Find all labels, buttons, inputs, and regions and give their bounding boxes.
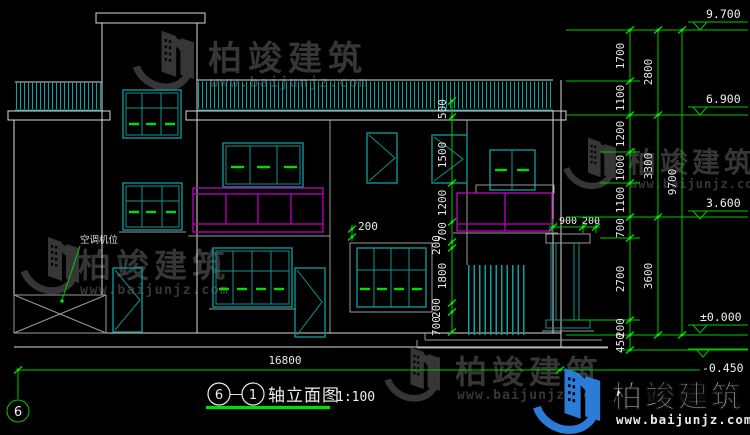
window-2f-right — [476, 150, 554, 193]
elevation-markers: 9.700 6.900 3.600 ±0.000 -0.450 — [688, 7, 748, 375]
dim-label: 1200 — [614, 121, 627, 148]
dim-label: 1700 — [614, 43, 627, 70]
dimensions: 500 1500 1200 700 200 1800 200 700 200 9… — [7, 7, 748, 422]
dim-label: 2700 — [614, 266, 627, 293]
elevation-value: 3.600 — [706, 196, 741, 210]
window-2f-left — [119, 183, 186, 232]
porch-column — [542, 234, 594, 331]
dim-label: 3600 — [642, 263, 655, 290]
watermark-brand: 柏竣建筑 — [612, 380, 744, 415]
watermark-brand: 柏竣建筑 — [78, 246, 230, 285]
dim-label: 1100 — [614, 85, 627, 112]
brand-logo-icon — [136, 31, 194, 87]
casement-window-left — [367, 133, 397, 183]
balcony-railing-center — [188, 188, 330, 236]
roof-railing-left — [15, 82, 102, 110]
watermark-brand: 柏竣建筑 — [208, 39, 368, 79]
elevation-value: 9.700 — [706, 7, 741, 21]
door-main — [295, 268, 325, 337]
title-bubble-left: 6 — [215, 388, 223, 403]
dim-label: 200 — [430, 298, 443, 318]
dim-label: 500 — [436, 99, 449, 119]
watermark-bottom-right: 柏竣建筑 www.baijunjz.com — [537, 368, 750, 430]
eave-offset-dim: 200 — [348, 220, 378, 241]
dim-label: 1200 — [436, 190, 449, 217]
elevation-value: ±0.000 — [700, 310, 742, 324]
dim-label: 450 — [614, 333, 627, 353]
dim-label: 1500 — [436, 142, 449, 169]
cornice — [8, 111, 566, 120]
drawing-title: 轴立面图 — [268, 386, 340, 406]
facade-dim-chain: 500 1500 1200 700 200 1800 200 700 — [430, 98, 456, 336]
brand-logo-icon — [24, 237, 79, 291]
watermark-url: www.baijunjz.com — [616, 412, 750, 427]
dim-label: 1800 — [436, 263, 449, 290]
dim-label: 900 — [559, 216, 577, 227]
porch-dims: 900 200 — [549, 216, 600, 233]
elevation-value: 6.900 — [706, 92, 741, 106]
brand-logo-icon — [566, 138, 616, 186]
dim-label: 1000 — [614, 155, 627, 182]
drawing-canvas: 柏竣建筑 www.baijunjz.com 柏竣建筑 www.baijunjz.… — [0, 0, 750, 435]
watermark-top-center: 柏竣建筑 www.baijunjz.com — [136, 31, 369, 91]
roof-railing-right — [197, 80, 553, 110]
title-bubble-right: 1 — [249, 388, 257, 403]
title-separator: — — [230, 387, 243, 402]
tower-window — [123, 90, 181, 138]
ac-label: 空调机位 — [80, 234, 119, 246]
balcony-window-center — [223, 143, 303, 187]
dim-label: 200 — [430, 235, 443, 255]
title-block: 6 — 1 轴立面图 1:100 — [206, 383, 375, 408]
drawing-scale: 1:100 — [336, 390, 375, 405]
brand-logo-icon — [388, 347, 440, 398]
dim-label: 200 — [582, 216, 600, 227]
ac-platform — [14, 295, 106, 333]
dim-label: 1100 — [614, 187, 627, 214]
cad-elevation-drawing: 柏竣建筑 www.baijunjz.com 柏竣建筑 www.baijunjz.… — [0, 0, 750, 435]
dim-label: 3300 — [642, 153, 655, 180]
dim-label: 700 — [614, 218, 627, 238]
dim-label: 700 — [430, 316, 443, 336]
elevation-value: -0.450 — [702, 361, 744, 375]
dim-label: 9700 — [666, 169, 679, 196]
axis-bubble-label: 6 — [14, 405, 22, 420]
dim-label: 200 — [358, 220, 378, 233]
watermark-url: www.baijunjz.com — [210, 75, 369, 91]
dim-label: 2800 — [642, 59, 655, 86]
window-1f-right — [350, 243, 432, 312]
dim-label: 16800 — [268, 354, 301, 367]
balcony-railing-right — [453, 193, 558, 233]
